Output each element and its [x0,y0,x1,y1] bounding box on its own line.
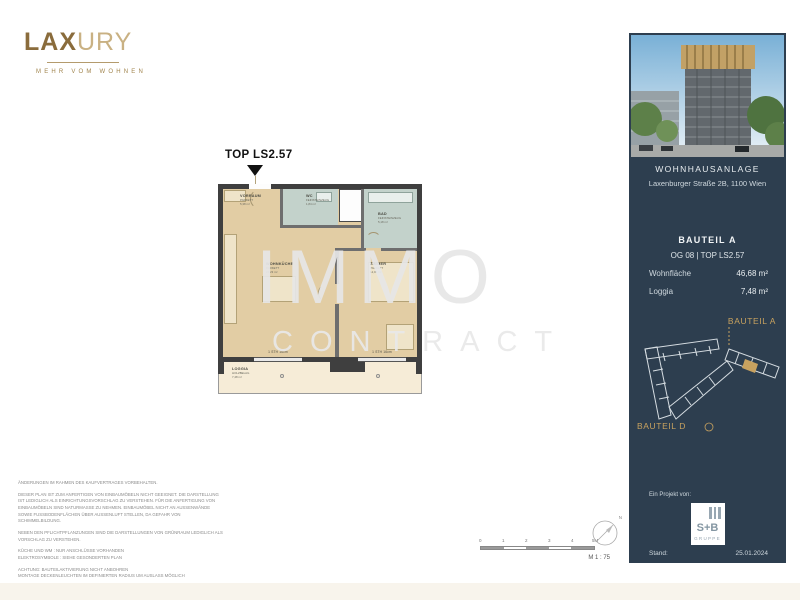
stand-date: 25.01.2024 [735,550,768,557]
room-label-vorraum: VORRAUM PARKETT 5,38 m² [240,194,261,207]
scale-ratio: M 1 : 75 [588,555,610,561]
bauteil-heading: BAUTEIL A [629,235,786,245]
info-sidebar: WOHNHAUSANLAGE Laxenburger Straße 2B, 11… [629,33,786,563]
logo-sub-text: GRUPPE [691,536,725,541]
wordmark-light: URY [77,28,132,56]
wall-vorraum-wc [280,189,283,228]
area-value: 7,48 m² [741,287,768,296]
scale-bar-segments [480,546,595,550]
loggia-symbol-1 [280,374,284,378]
loggia-wall-stub-right [416,362,422,374]
disclaimer-paragraph: DIESER PLAN IST ZUM ANFERTIGEN VON EINBA… [18,492,223,525]
area-label: Wohnfläche [649,269,691,278]
siteplan-label-bauteil-d: BAUTEIL D [637,421,686,431]
scale-tick: 4 [571,538,574,543]
area-value: 46,68 m² [736,269,768,278]
disclaimer-paragraph: ÄNDERUNGEN IM RAHMEN DES KAUFVERTRAGES V… [18,480,223,487]
room-label-wc: WC FEINSTEINZEUG 1,84 m² [306,194,329,207]
area-row-loggia: Loggia 7,48 m² [649,287,768,296]
kitchen-counter [224,234,237,324]
shaft [339,189,363,222]
window-note-1: 1 STH 16cm [254,350,302,354]
entrance-arrow-icon [247,165,263,176]
project-title: WOHNHAUSANLAGE [629,164,786,174]
north-label: N [619,515,622,520]
wordmark-bold: LAX [24,28,77,56]
siteplan-label-bauteil-a: BAUTEIL A [728,316,776,326]
floor-plan: 1 STH 16cm 1 STH 16cm VORRAUM PARKETT 5,… [218,184,422,398]
room-label-loggia: LOGGIA HOLZBELAG 7,48 m² [232,367,249,380]
disclaimer-paragraph: KÜCHE UND WM : NUR ANSCHLÜSSE VORHANDEN … [18,548,223,561]
scale-tick: 3 [548,538,551,543]
brand-tagline: MEHR VOM WOHNEN [36,69,164,75]
sb-gruppe-logo: S+B GRUPPE [691,503,725,545]
wardrobe [386,324,414,350]
room-label-wohnkueche: WOHNKÜCHE PARKETT 22,23 m² [266,262,293,275]
dining-table [262,276,296,302]
loggia-wall-stub-left [218,362,224,374]
project-by-label: Ein Projekt von: [649,492,691,498]
area-row-wohnflaeche: Wohnfläche 46,68 m² [649,269,768,278]
bad-door-swing [366,232,381,247]
building-photo [631,35,784,157]
window-note-2: 1 STH 16cm [358,350,406,354]
logo-divider [47,62,119,63]
laxury-logo: LAXURY MEHR VOM WOHNEN [24,30,164,75]
page-edge-band [0,583,800,600]
scale-tick: 0 [479,538,482,543]
project-address: Laxenburger Straße 2B, 1100 Wien [629,179,786,188]
scale-tick: 2 [525,538,528,543]
disclaimer-block: ÄNDERUNGEN IM RAHMEN DES KAUFVERTRAGES V… [18,480,223,585]
floor-plan-document-page: LAXURY MEHR VOM WOHNEN TOP LS2.57 [0,0,800,600]
bad-fixtures [368,192,413,203]
disclaimer-paragraph: NEBEN DEN PFLICHTPFLANZUNGEN SIND DIE DA… [18,530,223,543]
room-label-zimmer: ZIMMER PARKETT 12,05 m² [370,262,386,275]
highlighted-unit [742,359,758,373]
stand-label: Stand: [649,550,668,557]
wall-bad-left [361,189,364,251]
loggia-symbol-2 [376,374,380,378]
logo-main-text: S+B [691,522,725,534]
laxury-wordmark: LAXURY [24,30,164,55]
scale-tick: 1 [502,538,505,543]
wall-below-wc [280,225,363,228]
logo-bars-icon [709,507,721,519]
unit-label: TOP LS2.57 [225,149,293,161]
north-compass-icon: N [590,518,620,553]
loggia-wall-stub-center [330,362,365,372]
room-label-bad: BAD FEINSTEINZEUG 5,18 m² [378,212,401,225]
area-label: Loggia [649,287,673,296]
disclaimer-paragraph: ACHTUNG: BAUTEILAKTIVIERUNG NICHT ANBOHR… [18,567,223,580]
bad-door-opening [366,248,381,251]
zimmer-door-swing [318,284,336,302]
stand-row: Stand: 25.01.2024 [649,550,768,557]
floor-unit-line: OG 08 | TOP LS2.57 [629,251,786,260]
